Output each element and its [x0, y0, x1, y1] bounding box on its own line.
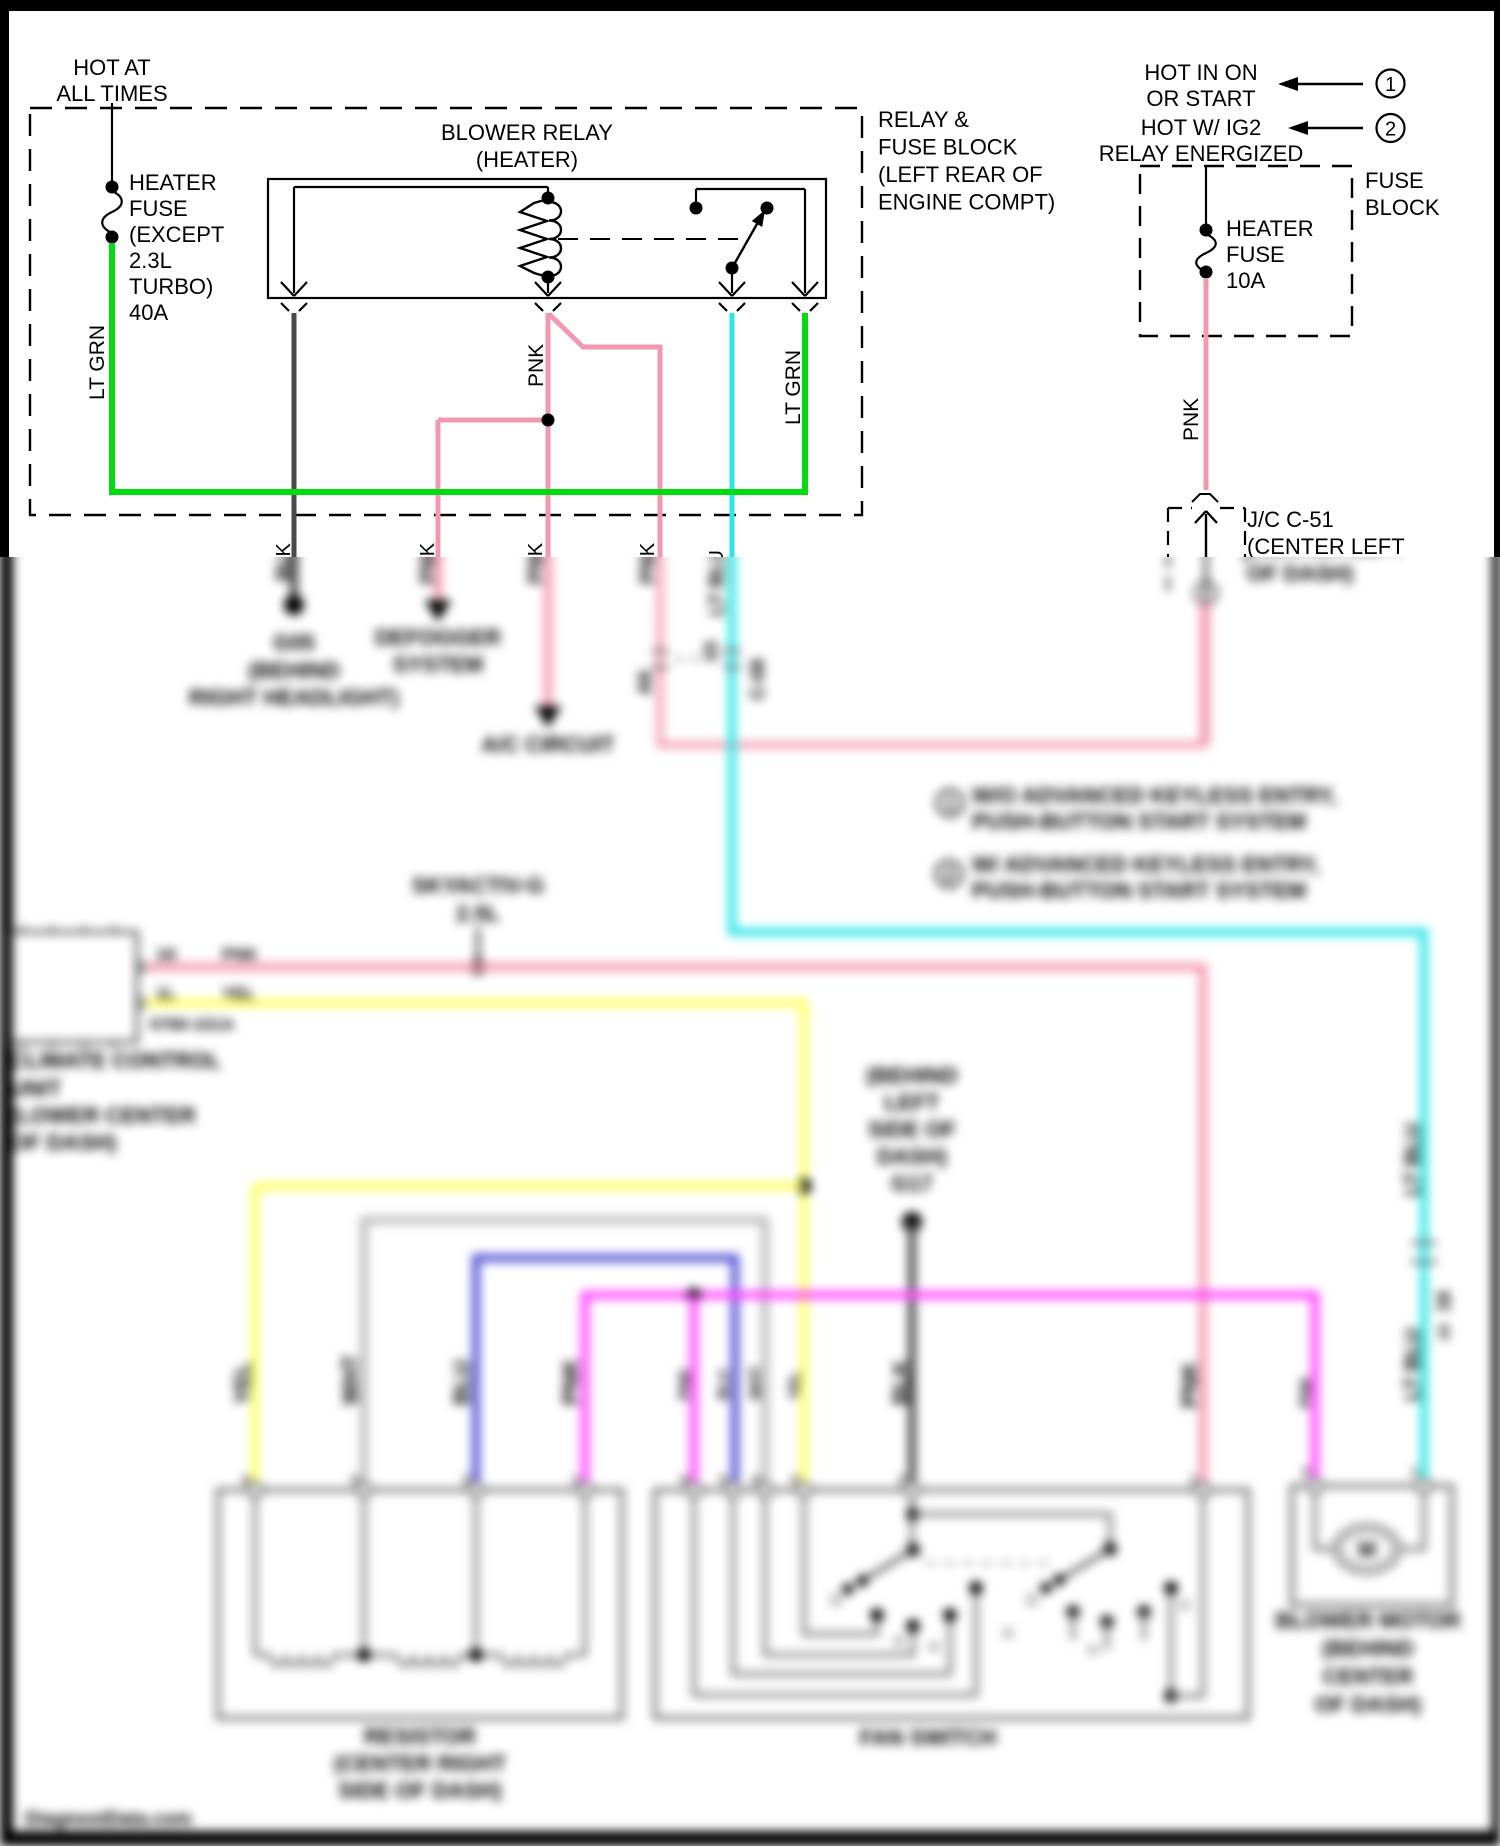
svg-text:3: 3 — [351, 1472, 358, 1487]
svg-text:1: 1 — [572, 1472, 579, 1487]
svg-text:0780-101A: 0780-101A — [150, 1015, 234, 1034]
svg-text:CENTER: CENTER — [1323, 1664, 1414, 1689]
svg-text:(LOWER CENTER: (LOWER CENTER — [10, 1103, 196, 1128]
svg-text:PNK: PNK — [1180, 398, 1203, 441]
svg-text:HOT AT: HOT AT — [73, 55, 150, 80]
svg-text:LEFT: LEFT — [885, 1090, 941, 1115]
svg-text:RESISTOR: RESISTOR — [364, 1724, 476, 1749]
svg-text:CLIMATE CONTROL: CLIMATE CONTROL — [10, 1048, 221, 1073]
svg-text:BLOWER MOTOR: BLOWER MOTOR — [1275, 1608, 1460, 1633]
svg-text:BLOWER RELAY: BLOWER RELAY — [441, 120, 613, 145]
svg-text:LT BLU: LT BLU — [706, 550, 728, 557]
svg-text:PNK: PNK — [1297, 1376, 1314, 1408]
svg-text:HOT W/ IG2: HOT W/ IG2 — [1141, 115, 1262, 140]
svg-text:4: 4 — [752, 1472, 760, 1487]
svg-text:1: 1 — [1385, 74, 1396, 96]
svg-text:LT GRN: LT GRN — [782, 350, 805, 425]
svg-text:ENGINE COMPT): ENGINE COMPT) — [878, 190, 1055, 215]
svg-text:WHT: WHT — [338, 1354, 363, 1405]
svg-text:2: 2 — [1385, 119, 1396, 141]
svg-text:OR START: OR START — [1146, 86, 1255, 111]
svg-text:J/C C-51: J/C C-51 — [1247, 507, 1334, 532]
svg-text:G05: G05 — [273, 630, 315, 655]
svg-text:HEATER: HEATER — [129, 170, 217, 195]
svg-text:(BEHIND: (BEHIND — [866, 1063, 958, 1088]
svg-text:PNK: PNK — [417, 557, 439, 584]
svg-text:A6: A6 — [635, 671, 656, 695]
svg-text:PNK: PNK — [676, 1368, 693, 1400]
svg-text:UNIT: UNIT — [10, 1076, 62, 1101]
svg-text:SIDE OF: SIDE OF — [868, 1117, 956, 1142]
svg-text:2.3L: 2.3L — [129, 248, 172, 273]
svg-text:PNK: PNK — [1177, 1361, 1202, 1408]
svg-text:15: 15 — [701, 641, 721, 661]
svg-text:SKYACTIV-G: SKYACTIV-G — [412, 873, 544, 898]
svg-text:LT GRN: LT GRN — [86, 325, 109, 400]
svg-text:BLOCK: BLOCK — [1365, 195, 1440, 220]
svg-text:FAN SWITCH: FAN SWITCH — [860, 1725, 997, 1750]
svg-text:(BEHIND: (BEHIND — [248, 658, 340, 683]
svg-text:10A: 10A — [1226, 268, 1265, 293]
svg-text:OF DASH): OF DASH) — [10, 1130, 116, 1155]
svg-text:BLK: BLK — [273, 543, 295, 557]
svg-text:BLK: BLK — [273, 557, 295, 581]
svg-text:PNK: PNK — [558, 1358, 583, 1405]
svg-text:(CENTER LEFT: (CENTER LEFT — [1247, 534, 1405, 557]
svg-text:PNK: PNK — [417, 542, 439, 557]
svg-text:(LEFT REAR OF: (LEFT REAR OF — [878, 162, 1043, 187]
svg-text:16: 16 — [1434, 1291, 1455, 1312]
svg-text:DASH): DASH) — [877, 1144, 947, 1169]
svg-text:C-08: C-08 — [748, 659, 769, 700]
svg-text:BLU: BLU — [715, 1369, 732, 1400]
svg-text:W/O ADVANCED KEYLESS ENTRY,: W/O ADVANCED KEYLESS ENTRY, — [972, 783, 1337, 808]
svg-text:PUSH-BUTTON START SYSTEM: PUSH-BUTTON START SYSTEM — [972, 809, 1306, 834]
svg-text:15: 15 — [1436, 1324, 1453, 1341]
svg-text:2: 2 — [899, 1472, 906, 1487]
svg-text:2.5L: 2.5L — [456, 901, 500, 926]
svg-text:40A: 40A — [129, 300, 168, 325]
svg-text:PNK: PNK — [525, 344, 548, 387]
svg-text:SYSTEM: SYSTEM — [393, 652, 483, 677]
svg-text:2: 2 — [1302, 1464, 1309, 1479]
svg-text:G17: G17 — [891, 1171, 933, 1196]
svg-text:FUSE: FUSE — [1365, 168, 1424, 193]
svg-text:TURBO): TURBO) — [129, 274, 213, 299]
svg-text:2: 2 — [944, 865, 954, 885]
svg-text:(EXCEPT: (EXCEPT — [129, 222, 224, 247]
svg-text:LT BLU: LT BLU — [1401, 1328, 1424, 1401]
svg-text:FUSE: FUSE — [1226, 242, 1285, 267]
svg-text:RIGHT HEADLIGHT): RIGHT HEADLIGHT) — [189, 685, 399, 710]
svg-text:W/ ADVANCED KEYLESS ENTRY,: W/ ADVANCED KEYLESS ENTRY, — [972, 852, 1320, 877]
svg-text:A/C CIRCUIT: A/C CIRCUIT — [481, 732, 615, 757]
svg-text:(BEHIND: (BEHIND — [1322, 1636, 1414, 1661]
svg-text:BLK: BLK — [888, 1360, 913, 1405]
svg-text:6: 6 — [681, 1472, 688, 1487]
svg-text:BLU: BLU — [449, 1360, 474, 1405]
svg-text:PNK: PNK — [637, 542, 659, 557]
svg-text:RELAY &: RELAY & — [878, 107, 969, 132]
svg-text:PUSH-BUTTON START SYSTEM: PUSH-BUTTON START SYSTEM — [972, 878, 1306, 903]
svg-text:OF DASH): OF DASH) — [1247, 561, 1353, 586]
svg-text:DEFOGGER: DEFOGGER — [375, 625, 501, 650]
svg-text:3: 3 — [791, 1472, 798, 1487]
svg-text:2: 2 — [463, 1472, 470, 1487]
svg-text:LT BLU: LT BLU — [1401, 1123, 1424, 1196]
svg-text:WHT: WHT — [747, 1366, 764, 1400]
svg-text:M: M — [1358, 1537, 1376, 1562]
svg-text:FUSE: FUSE — [129, 196, 188, 221]
svg-text:YEL: YEL — [786, 1371, 803, 1400]
svg-text:YEL: YEL — [230, 1361, 255, 1404]
svg-text:PNK: PNK — [222, 945, 259, 964]
svg-text:OF DASH): OF DASH) — [1315, 1692, 1421, 1717]
svg-text:HOT IN ON: HOT IN ON — [1144, 60, 1257, 85]
svg-text:(HEATER): (HEATER) — [476, 147, 578, 172]
svg-text:PNK: PNK — [525, 542, 547, 557]
svg-text:PNK: PNK — [637, 557, 659, 584]
svg-text:1: 1 — [945, 794, 955, 814]
svg-text:1K: 1K — [156, 945, 178, 964]
svg-text:HEATER: HEATER — [1226, 216, 1314, 241]
svg-text:FUSE BLOCK: FUSE BLOCK — [878, 135, 1018, 160]
svg-text:SIDE OF DASH): SIDE OF DASH) — [338, 1778, 502, 1803]
svg-text:1: 1 — [1190, 1472, 1197, 1487]
svg-text:ALL TIMES: ALL TIMES — [56, 81, 167, 106]
svg-text:(CENTER LEFT: (CENTER LEFT — [1247, 557, 1406, 559]
svg-text:PNK: PNK — [525, 557, 547, 584]
svg-text:DiagnostData.com: DiagnostData.com — [25, 1809, 192, 1830]
svg-text:LT BLU: LT BLU — [706, 557, 728, 616]
svg-text:4: 4 — [242, 1472, 250, 1487]
svg-text:1: 1 — [1411, 1464, 1418, 1479]
svg-text:(CENTER RIGHT: (CENTER RIGHT — [334, 1751, 507, 1776]
svg-text:5: 5 — [720, 1472, 727, 1487]
svg-text:RELAY ENERGIZED: RELAY ENERGIZED — [1099, 141, 1304, 166]
